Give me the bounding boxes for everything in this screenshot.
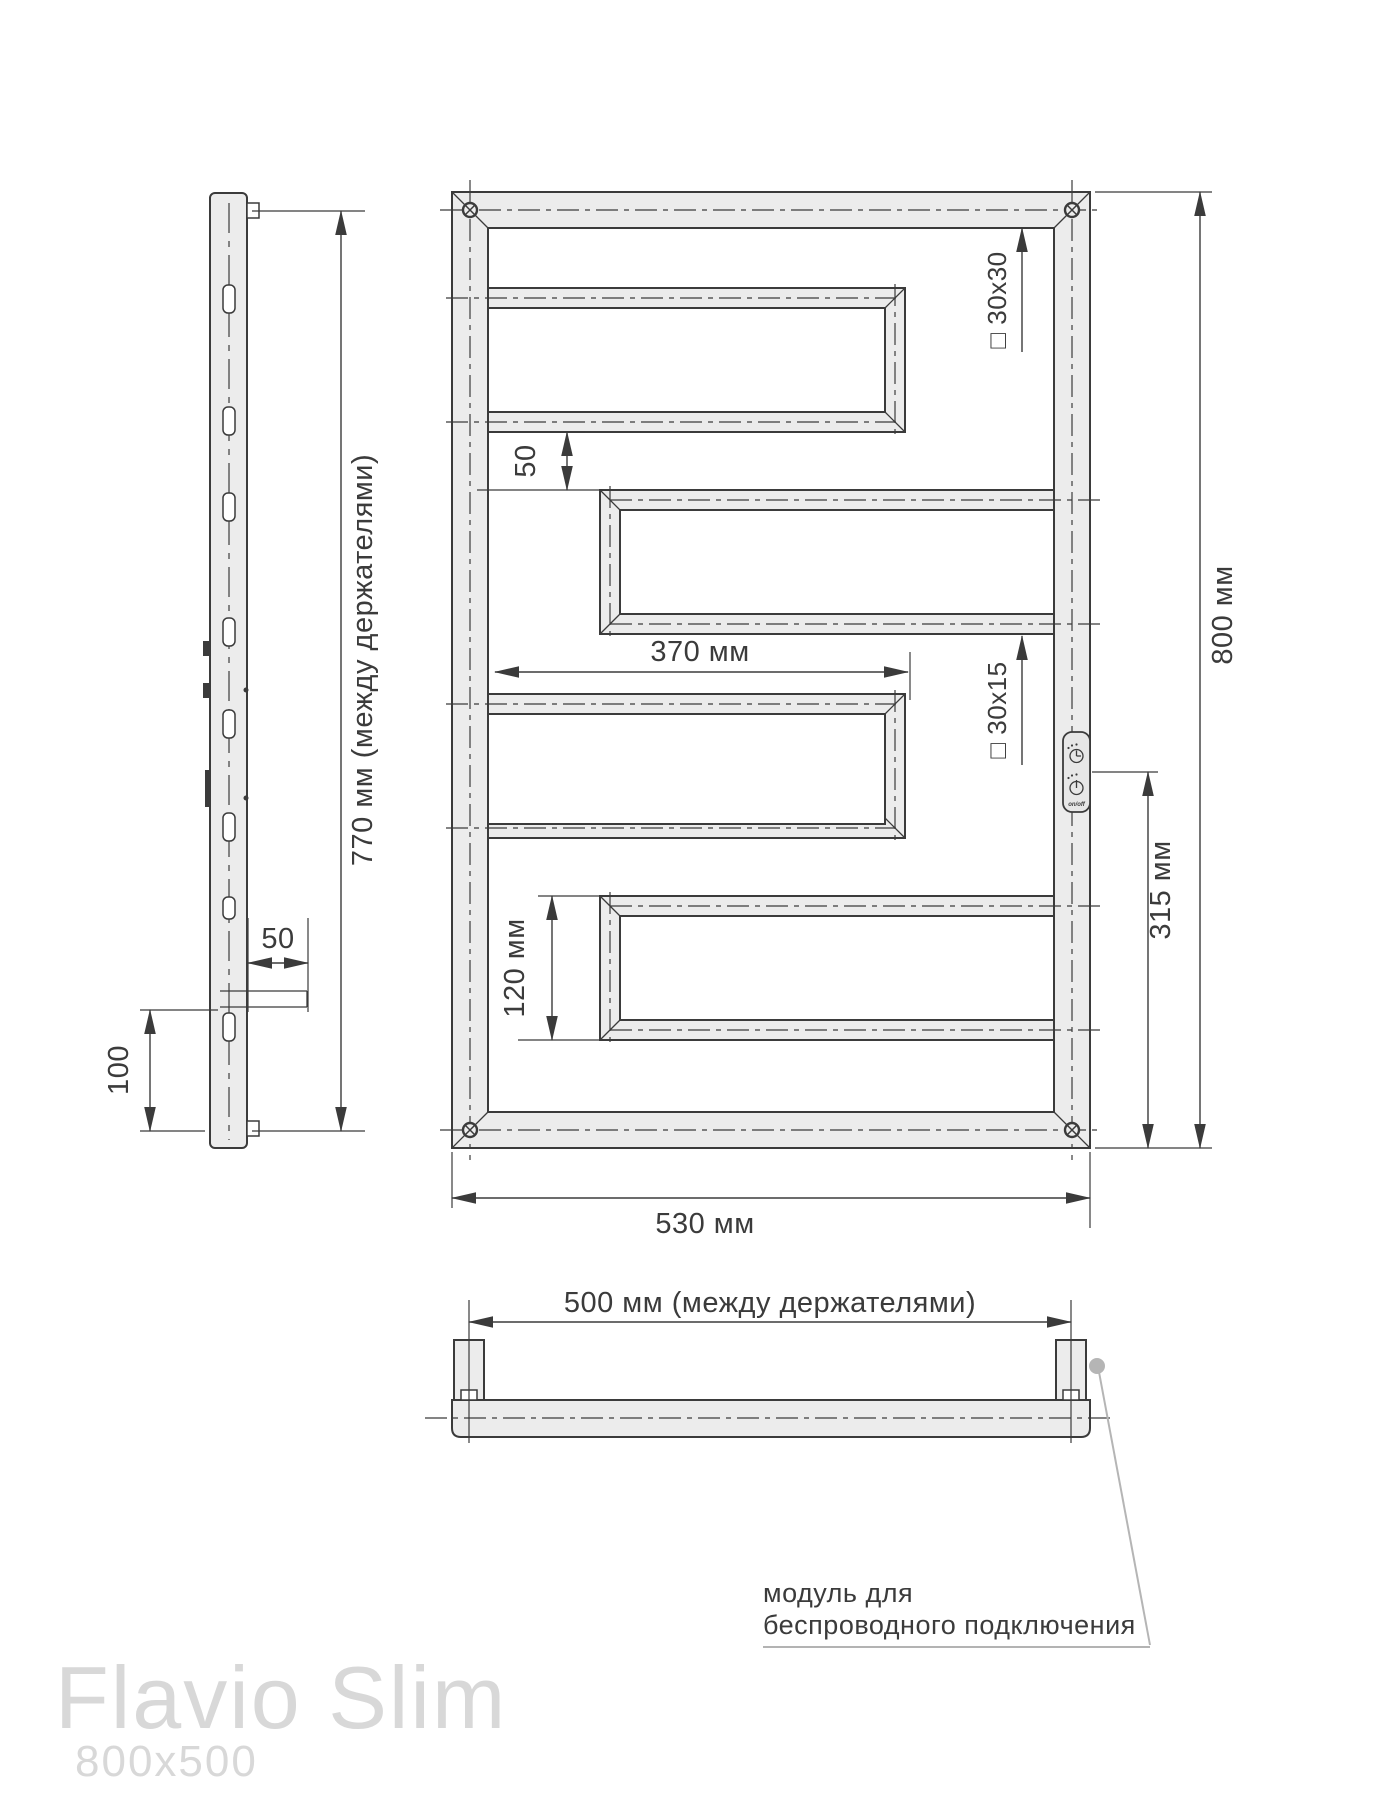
slot [223,813,235,841]
callout-leader-line [1099,1372,1150,1645]
screw-icon [1065,203,1079,217]
fitting-bump [203,683,210,698]
dim-500-between-holders: 500 мм (между держателями) [469,1287,1071,1322]
product-name: Flavio Slim [55,1648,507,1747]
drawing-page: 770 мм (между держателями) 50 100 [0,0,1376,1800]
dim-315: 315 мм [1092,772,1177,1148]
callout-text-line1: модуль для [763,1578,913,1608]
product-size: 800x500 [75,1737,258,1786]
dim-label-50-side: 50 [261,923,294,955]
dim-label-770: 770 мм (между держателями) [347,454,379,866]
slot [223,897,235,919]
bottom-view: 500 мм (между держателями) модуль для бе… [425,1287,1150,1647]
slot [223,710,235,738]
dim-label-50-gap: 50 [510,444,542,477]
dim-label-800: 800 мм [1207,565,1239,664]
screw-icon [1065,1123,1079,1137]
dim-label-370: 370 мм [650,636,749,668]
dim-530: 530 мм [452,1152,1090,1240]
dim-label-120: 120 мм [499,918,531,1017]
label-bar-profile: □ 30x15 [982,661,1012,758]
dim-120: 120 мм [499,896,612,1040]
onoff-label: on/off [1068,802,1086,808]
dim-800: 800 мм [1095,192,1239,1148]
dim-label-315: 315 мм [1145,840,1177,939]
front-view: on/off 50 370 мм □ 30x30 □ 30x15 31 [440,180,1239,1240]
bar-1 [488,288,905,432]
slot [223,407,235,435]
control-module: on/off [1063,732,1090,812]
dim-100-bottom-offset: 100 [103,1010,218,1131]
screw-icon [463,203,477,217]
side-bottom-holder-tab [247,1121,259,1136]
leader-30x30: □ 30x30 [982,228,1022,352]
dim-label-100: 100 [103,1045,135,1095]
label-frame-profile: □ 30x30 [982,251,1012,348]
screw-icon [463,1123,477,1137]
leader-30x15: □ 30x15 [982,636,1022,765]
slot [223,1013,235,1041]
dim-370: 370 мм [495,636,910,700]
title-block: Flavio Slim 800x500 [55,1648,507,1786]
fitting-dot [244,688,249,693]
dim-label-530: 530 мм [655,1208,754,1240]
heating-element-entry [205,770,211,807]
slot [223,618,235,646]
callout-text-line2: беспроводного подключения [763,1610,1136,1640]
slot [223,493,235,521]
callout-dot [1089,1358,1105,1374]
dim-label-500: 500 мм (между держателями) [564,1287,976,1319]
technical-drawing: 770 мм (между держателями) 50 100 [0,0,1376,1800]
side-bottom-bracket-fill [248,991,307,1007]
bar-3 [488,694,905,838]
fitting-dot [244,796,249,801]
fitting-bump [203,641,210,656]
bar-4 [600,896,1054,1040]
slot [223,285,235,313]
side-view: 770 мм (между держателями) 50 100 [103,193,379,1148]
bar-2 [600,490,1054,634]
dim-50-gap: 50 [477,432,602,490]
